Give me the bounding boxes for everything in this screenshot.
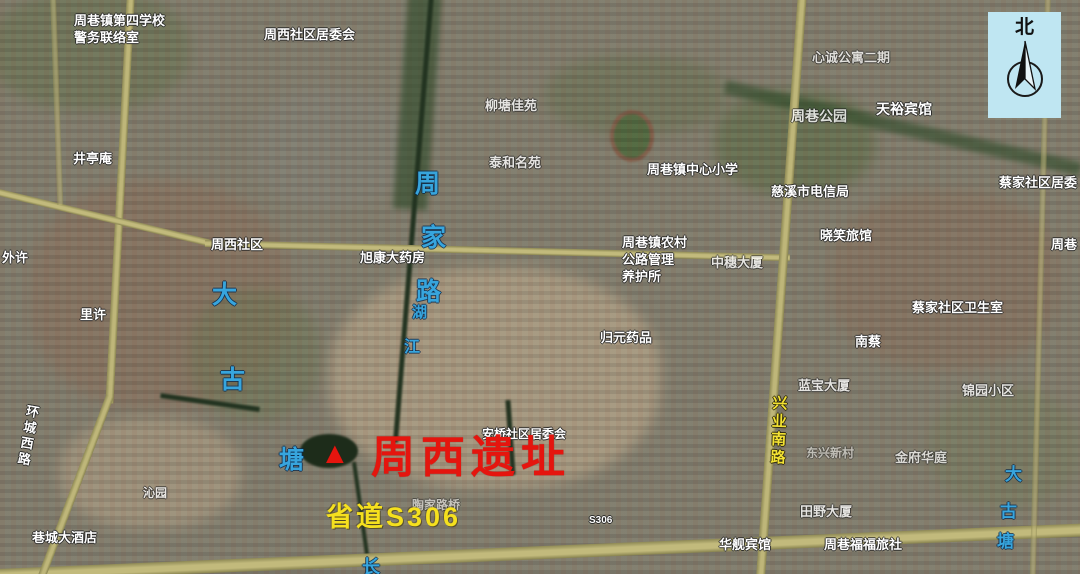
- label-river-hu: 湖: [412, 303, 427, 323]
- label-zhouxiang-central-primary-school: 周巷镇中心小学: [647, 162, 738, 179]
- label-xukang-pharmacy: 旭康大药房: [360, 250, 425, 267]
- label-qinyuan: 沁园: [143, 486, 167, 502]
- label-xingye-south-road: 兴业南路: [767, 395, 789, 468]
- label-zhouxiang-fufu-hostel: 周巷福福旅社: [824, 537, 902, 554]
- label-tianye-building: 田野大厦: [800, 504, 852, 521]
- label-river-jiang: 江: [404, 338, 420, 359]
- label-dagutang-right-gu: 古: [1000, 501, 1017, 523]
- label-dagutang-left-da: 大: [212, 279, 237, 312]
- label-river-jia: 家: [421, 222, 446, 255]
- label-dagutang-right-da: 大: [1005, 464, 1022, 486]
- label-nancai: 南蔡: [855, 334, 881, 351]
- label-zhouxi-community: 周西社区: [211, 237, 263, 254]
- label-s306-shield: S306: [589, 514, 612, 527]
- label-dagutang-right-tang: 塘: [997, 531, 1014, 553]
- label-cixi-telecom-bureau: 慈溪市电信局: [771, 184, 849, 201]
- label-zhouxiang-park: 周巷公园: [791, 107, 847, 125]
- label-jingting-temple: 井亭庵: [73, 151, 112, 168]
- label-taihe-mingyuan: 泰和名苑: [489, 155, 541, 172]
- label-dongxing-village: 东兴新村: [806, 446, 854, 462]
- label-blue-partial-bottom: 长: [362, 556, 380, 574]
- label-waixu: 外许: [2, 250, 28, 267]
- label-road-maintenance-office: 周巷镇农村公路管理养护所: [622, 235, 687, 286]
- satellite-map-image: 北 周巷镇第四学校警务联络室周西社区居委会井亭庵柳塘佳苑泰和名苑心诚公寓二期周巷…: [0, 0, 1080, 574]
- label-xincheng-apartment: 心诚公寓二期: [812, 50, 890, 67]
- site-title-zhouxi-ruins: 周西遗址: [371, 429, 571, 486]
- label-caijia-community-committee: 蔡家社区居委: [999, 175, 1077, 192]
- label-provincial-road-s306: 省道S306: [326, 500, 461, 535]
- label-xiaoxiao-inn: 晓笑旅馆: [820, 228, 872, 245]
- label-liutang-jiayuan: 柳塘佳苑: [485, 98, 537, 115]
- label-xiangcheng-hotel: 巷城大酒店: [32, 530, 97, 547]
- label-jinyuan-residence: 锦园小区: [962, 383, 1014, 400]
- north-arrow-icon: [1002, 37, 1048, 107]
- label-caijia-community-clinic: 蔡家社区卫生室: [912, 300, 1003, 317]
- site-marker-triangle: ▲: [320, 434, 350, 473]
- label-dagutang-left-tang: 塘: [279, 444, 304, 477]
- compass-north-label: 北: [1015, 18, 1034, 37]
- label-dagutang-left-gu: 古: [220, 364, 245, 397]
- label-school-police-office: 周巷镇第四学校警务联络室: [74, 13, 165, 47]
- label-clipped-right: 周巷: [1051, 237, 1077, 254]
- label-tianyu-hotel: 天裕宾馆: [876, 100, 932, 118]
- label-guiyuan-medicine: 归元药品: [600, 330, 652, 347]
- label-huajian-hotel: 华舰宾馆: [719, 537, 771, 554]
- label-lixu: 里许: [80, 307, 106, 324]
- label-lanbao-building: 蓝宝大厦: [798, 378, 850, 395]
- label-jinfu-huating: 金府华庭: [895, 450, 947, 467]
- compass-box: 北: [988, 12, 1061, 118]
- label-zhongsui-building: 中穗大厦: [711, 255, 763, 272]
- label-river-zhou: 周: [415, 168, 440, 201]
- label-zhouxi-community-committee: 周西社区居委会: [264, 27, 355, 44]
